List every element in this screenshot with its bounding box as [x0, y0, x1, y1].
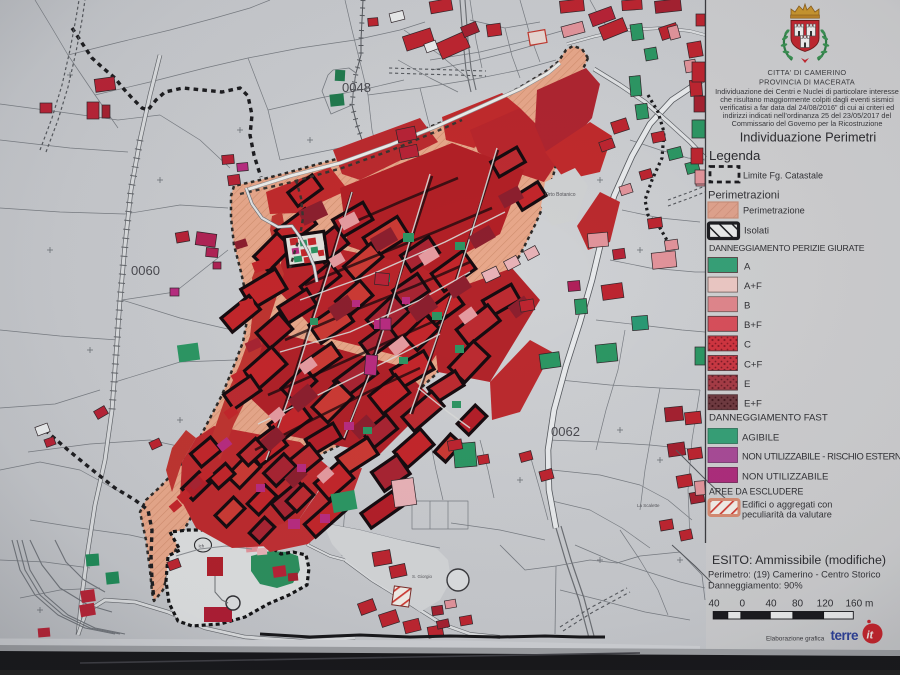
svg-text:La Scalette: La Scalette — [637, 503, 660, 508]
svg-text:AGIBILE: AGIBILE — [742, 432, 779, 443]
svg-text:C+F: C+F — [744, 359, 763, 370]
svg-text:S. Giorgio: S. Giorgio — [412, 574, 433, 579]
svg-text:Legenda: Legenda — [709, 148, 761, 163]
svg-text:Edifici o aggregati con: Edifici o aggregati con — [742, 500, 832, 510]
svg-text:DANNEGGIAMENTO FAST: DANNEGGIAMENTO FAST — [709, 413, 828, 424]
svg-text:Perimetrazioni: Perimetrazioni — [708, 190, 780, 202]
svg-text:NON UTILIZZABILE - RISCHIO EST: NON UTILIZZABILE - RISCHIO ESTERNO — [742, 450, 900, 461]
svg-text:AREE DA ESCLUDERE: AREE DA ESCLUDERE — [709, 487, 803, 497]
svg-text:PROVINCIA DI MACERATA: PROVINCIA DI MACERATA — [759, 78, 855, 87]
svg-text:CITTA' DI CAMERINO: CITTA' DI CAMERINO — [768, 68, 847, 77]
svg-text:Commissario del Governo per la: Commissario del Governo per la Ricostruz… — [732, 119, 883, 128]
svg-text:Limite Fg. Catastale: Limite Fg. Catastale — [743, 171, 823, 181]
svg-text:120: 120 — [817, 599, 834, 610]
svg-text:Perimetrazione: Perimetrazione — [743, 206, 805, 216]
svg-text:Ich: Ich — [199, 544, 205, 549]
svg-text:DANNEGGIAMENTO PERIZIE GIURATE: DANNEGGIAMENTO PERIZIE GIURATE — [709, 243, 865, 253]
svg-text:terre: terre — [831, 628, 860, 643]
svg-text:Elaborazione grafica: Elaborazione grafica — [766, 636, 825, 643]
svg-text:Isolati: Isolati — [744, 226, 769, 237]
svg-text:Orto Botanico: Orto Botanico — [545, 192, 576, 198]
svg-text:40: 40 — [765, 599, 777, 610]
svg-text:E: E — [744, 379, 750, 390]
svg-text:Individuazione Perimetri: Individuazione Perimetri — [740, 130, 877, 145]
svg-text:E+F: E+F — [744, 399, 762, 410]
svg-text:Danneggiamento: 90%: Danneggiamento: 90% — [708, 581, 803, 591]
svg-text:0048: 0048 — [342, 80, 371, 95]
svg-text:160 m: 160 m — [846, 599, 874, 610]
svg-text:B: B — [744, 301, 750, 312]
svg-text:0060: 0060 — [131, 263, 160, 278]
svg-text:peculiarità da valutare: peculiarità da valutare — [742, 510, 832, 520]
svg-text:Perimetro: (19) Camerino - Cen: Perimetro: (19) Camerino - Centro Storic… — [708, 570, 881, 580]
svg-text:A+F: A+F — [744, 281, 762, 292]
svg-text:ESITO: Ammissibile (modifiche): ESITO: Ammissibile (modifiche) — [712, 553, 886, 567]
svg-text:NON UTILIZZABILE: NON UTILIZZABILE — [742, 471, 828, 482]
svg-text:0: 0 — [740, 599, 746, 610]
svg-text:A: A — [744, 261, 751, 272]
svg-text:80: 80 — [792, 599, 804, 610]
svg-text:C: C — [744, 340, 751, 351]
svg-text:40: 40 — [708, 599, 720, 610]
svg-text:B+F: B+F — [744, 320, 762, 331]
svg-text:0062: 0062 — [551, 424, 580, 439]
